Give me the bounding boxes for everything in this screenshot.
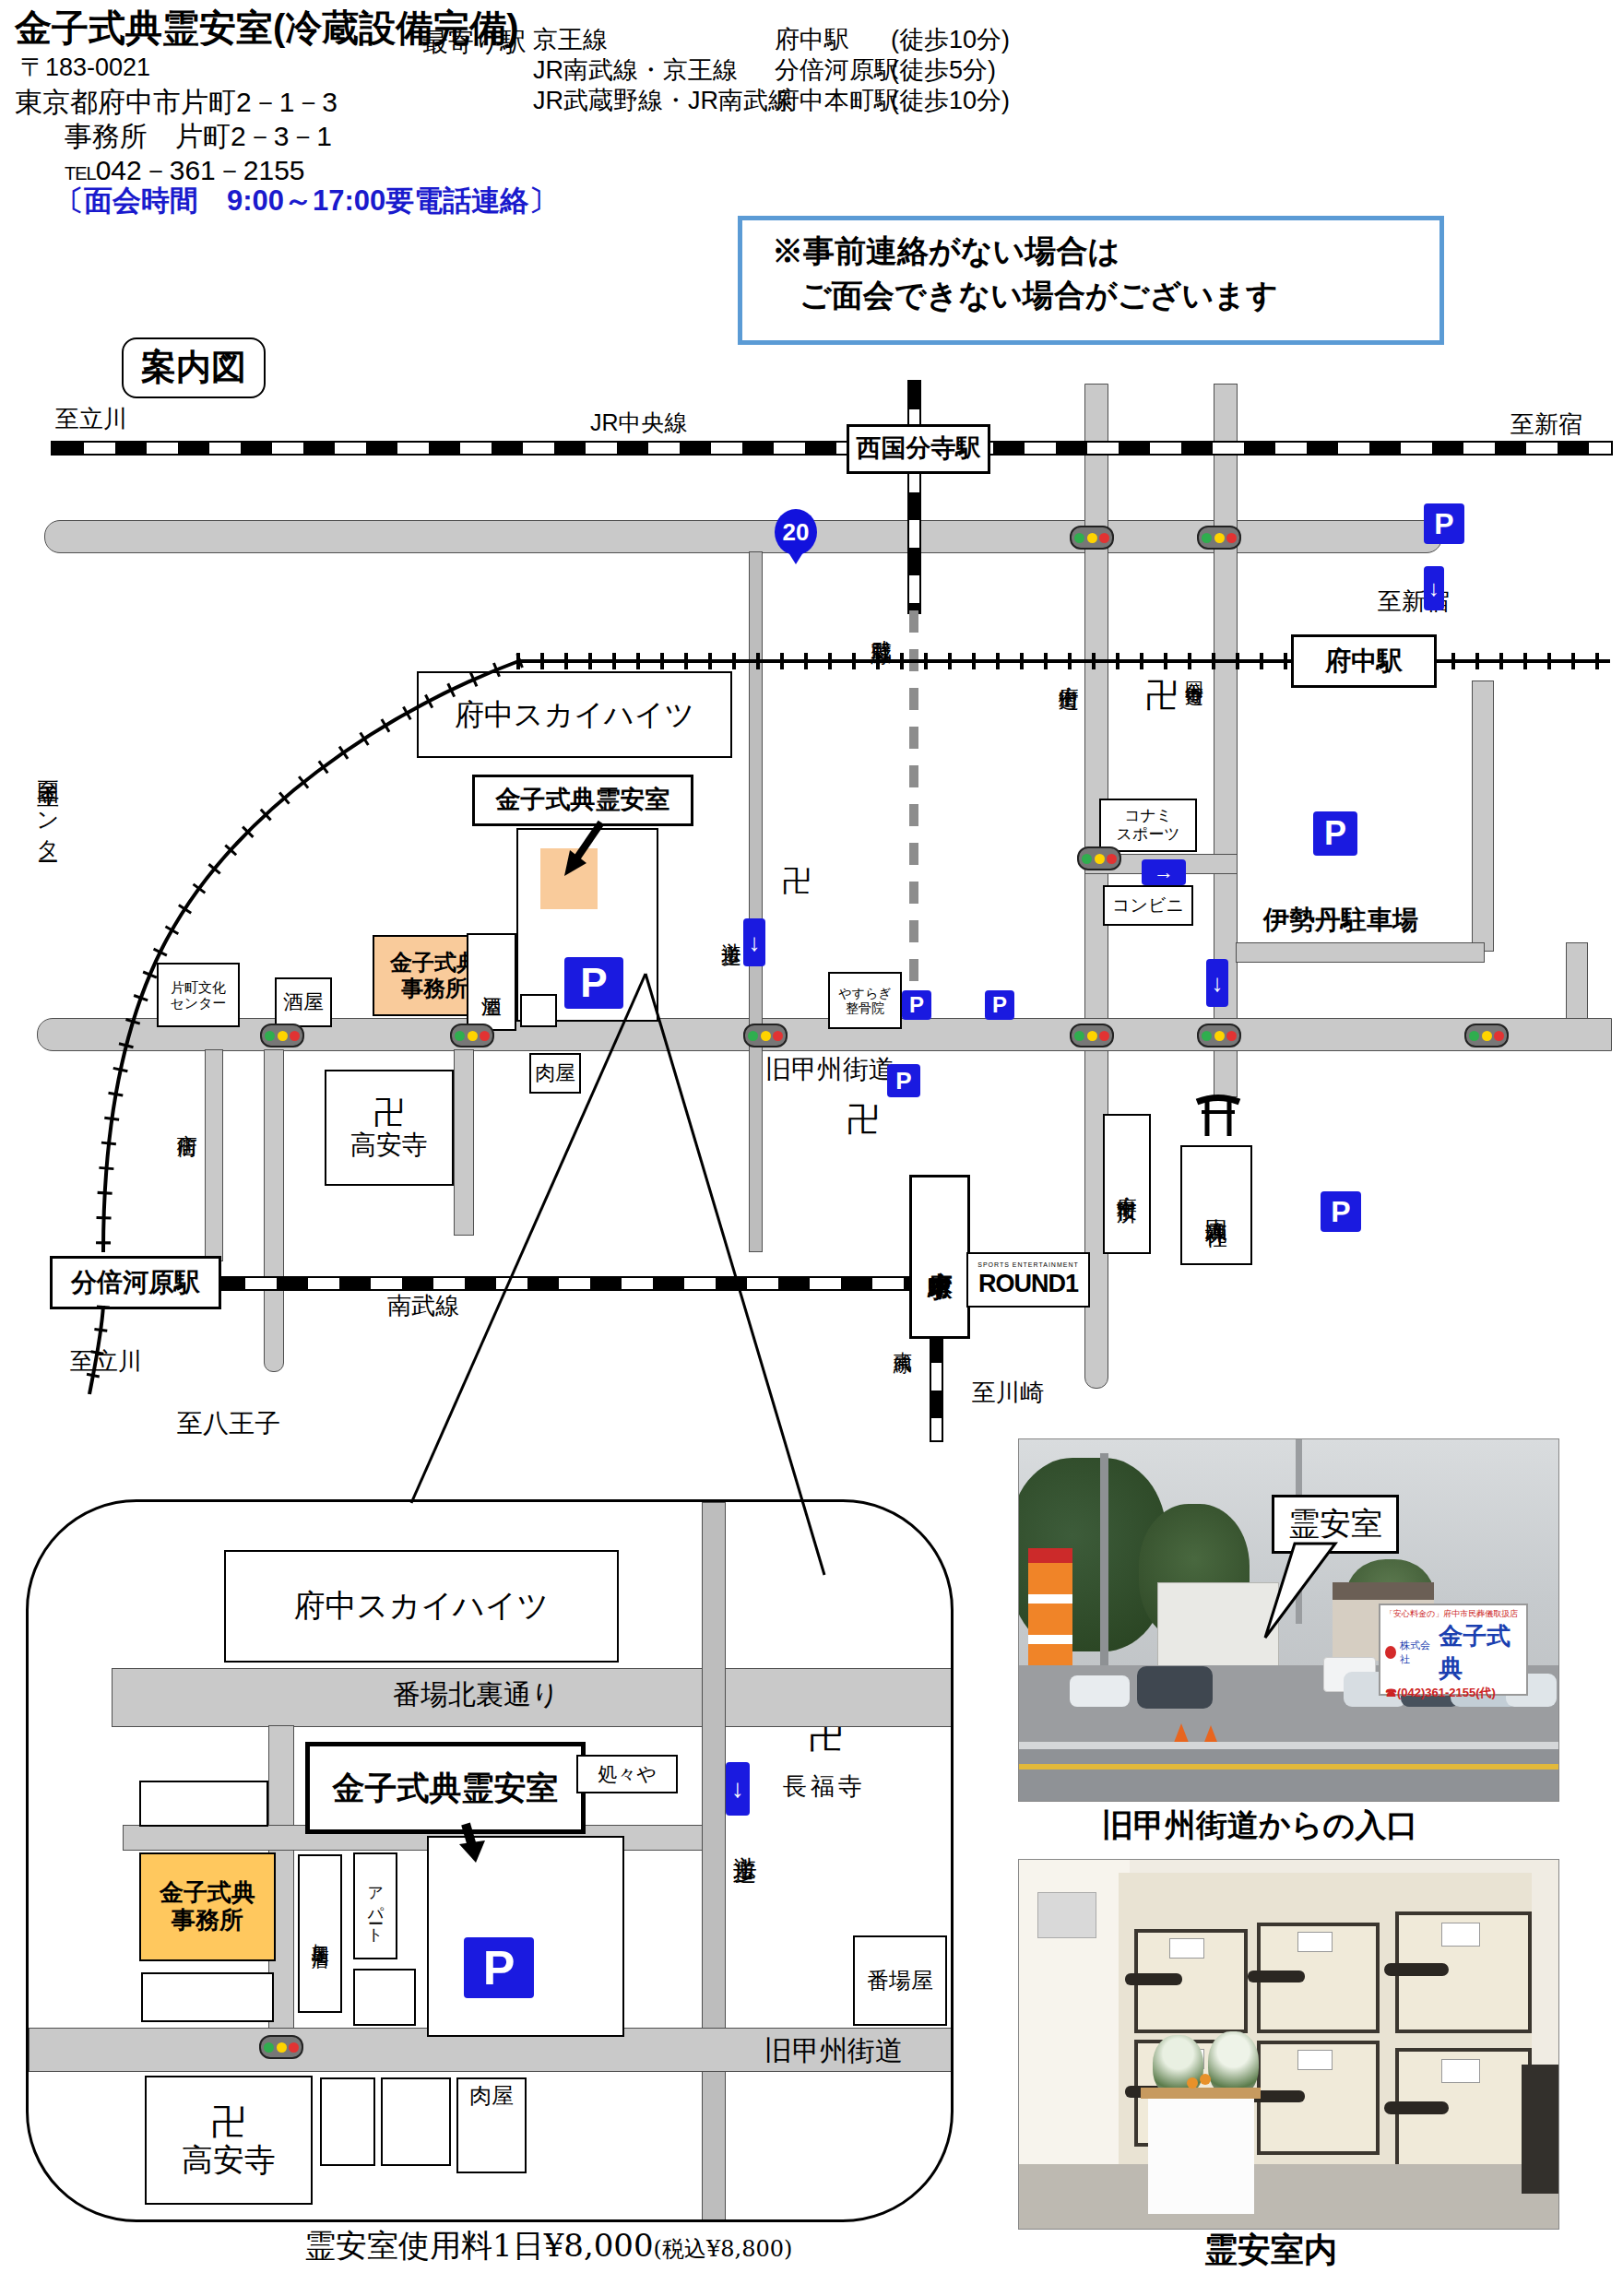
parking-icon: P xyxy=(564,957,623,1009)
shiyakusho-label: 府中市役所 xyxy=(1115,1179,1138,1189)
manji-icon: 卍 xyxy=(782,865,811,898)
jr-chuo-label: JR中央線 xyxy=(590,409,688,435)
traffic-signal-icon xyxy=(743,1024,788,1047)
konami-line1: コナミ xyxy=(1124,807,1172,825)
yasuragi-line1: やすらぎ xyxy=(838,986,891,1000)
apartment-box: アパート xyxy=(353,1852,397,1959)
shotengai-label: 商店街 xyxy=(175,1118,198,1123)
inset-yuhodo-road xyxy=(702,1502,726,2221)
kaneko-office-line1: 金子式典 xyxy=(390,950,479,976)
fuchu-sky-heights-label: 府中スカイハイツ xyxy=(455,698,695,732)
kokubunji-kaido-road xyxy=(1214,384,1238,1042)
door-label-card xyxy=(1441,1923,1480,1947)
traffic-signal-icon xyxy=(1077,846,1121,870)
cooling-unit xyxy=(1037,1892,1096,1938)
isetan-parking-label: 伊勢丹駐車場 xyxy=(1263,905,1418,934)
manji-icon: 卍 xyxy=(373,1095,405,1130)
parking-glyph: P xyxy=(1331,1195,1350,1229)
inset-mortuary-plot xyxy=(427,1836,624,2037)
offering-fruit xyxy=(1200,2074,1211,2085)
nikuya-box: 肉屋 xyxy=(529,1053,581,1094)
inset-takaanji-label: 高安寺 xyxy=(182,2142,276,2178)
inset-takaanji-box: 卍 高安寺 xyxy=(145,2076,313,2205)
table-top xyxy=(1141,2088,1261,2099)
fuchu-honmachi-label: 府中本町駅 xyxy=(926,1252,954,1261)
notice-line1: ※事前連絡がない場合は xyxy=(772,233,1120,268)
sakaya-vertical-box: 酒屋 xyxy=(467,933,516,1031)
down-arrow-glyph: ↓ xyxy=(731,1774,744,1804)
parking-icon: P xyxy=(902,990,931,1020)
table-cloth xyxy=(1148,2099,1254,2214)
photo-callout-text: 霊安室 xyxy=(1288,1506,1382,1542)
parking-sign-board xyxy=(1028,1548,1072,1563)
traffic-signal-icon xyxy=(259,2035,303,2059)
visiting-hours: 〔面会時間 9:00～17:00要電話連絡〕 xyxy=(55,185,557,218)
inset-white-box xyxy=(320,2077,375,2166)
manji-icon: 卍 xyxy=(1145,677,1179,714)
fridge-door xyxy=(1257,2041,1380,2155)
fuchu-station: 府中駅 xyxy=(1291,634,1437,688)
katamachi-line2: センター xyxy=(170,995,226,1011)
interior-caption: 霊安室内 xyxy=(1204,2231,1337,2268)
office-address: 事務所 片町2－3－1 xyxy=(65,121,332,152)
station-1: 府中駅 xyxy=(775,26,849,53)
map-title-text: 案内図 xyxy=(141,348,246,388)
sign-name: 金子式典 xyxy=(1439,1620,1522,1685)
parking-glyph: P xyxy=(1324,814,1346,853)
sign-company: 株式会社 xyxy=(1400,1639,1435,1666)
okunitama-label: 大国魂神社 xyxy=(1203,1201,1229,1210)
fridge-door xyxy=(1395,1911,1532,2033)
round1-box: SPORTS ENTERTAINMENT ROUND1 xyxy=(966,1252,1090,1308)
bubaigawara-station: 分倍河原駅 xyxy=(50,1256,221,1309)
inset-yuhodo-label: 遊歩道 xyxy=(731,1838,758,1843)
road-line xyxy=(1019,1764,1558,1769)
right-arrow-glyph: → xyxy=(1154,860,1174,884)
entrance-photo: 「安心料金の」府中市民葬儀取扱店 株式会社 金子式典 ☎(042)361-215… xyxy=(1018,1438,1559,1802)
interior-photo xyxy=(1018,1859,1559,2230)
katamachi-line1: 片町文化 xyxy=(171,979,226,995)
door-label-card xyxy=(1297,2050,1333,2070)
kaneko-office-line2: 事務所 xyxy=(401,976,468,1001)
down-arrow-sign-icon: ↓ xyxy=(1206,959,1228,1007)
isetan-north-road xyxy=(1236,942,1485,963)
photo-callout-box: 霊安室 xyxy=(1272,1495,1399,1554)
notice-box: ※事前連絡がない場合は ご面会できない場合がございます xyxy=(738,216,1444,345)
price-main: 霊安室使用料1日¥8,000 xyxy=(304,2227,654,2264)
manji-icon: 卍 xyxy=(847,1101,880,1138)
isetan-east-road xyxy=(1566,942,1588,1027)
down-arrow-glyph: ↓ xyxy=(1428,575,1439,601)
to-kunitachi-inter: 至国立インター xyxy=(35,763,60,852)
parking-icon: P xyxy=(464,1937,534,1998)
floor xyxy=(1019,2164,1558,2229)
inset-sky-heights-label: 府中スカイハイツ xyxy=(294,1588,550,1624)
fuchu-kaido-label: 府中街道 xyxy=(1057,669,1080,677)
nishikokubunji-label: 西国分寺駅 xyxy=(857,434,981,463)
line-3: JR武蔵野線・JR南武線 xyxy=(533,87,793,114)
fuchu-south-road xyxy=(1472,681,1494,952)
fuchu-shiyakusho-box: 府中市役所 xyxy=(1103,1114,1151,1254)
route20-badge: 20 xyxy=(775,509,817,555)
sign-tel: ☎(042)361-2155(代) xyxy=(1385,1685,1522,1701)
inset-reianshitsu-label: 金子式典霊安室 xyxy=(305,1742,586,1834)
nearest-station-label: 最寄り駅 xyxy=(422,28,527,56)
traffic-signal-icon xyxy=(1070,526,1114,550)
traffic-signal-icon xyxy=(260,1024,304,1047)
traffic-signal-icon xyxy=(1197,1024,1241,1047)
bambaya-label: 番場屋 xyxy=(867,1968,933,1994)
round1-logo: ROUND1 xyxy=(978,1270,1078,1298)
guide-map-page: 金子式典霊安室(冷蔵設備完備) 〒183-0021 東京都府中市片町2－1－3 … xyxy=(0,0,1623,2296)
fuchu-sky-heights-box: 府中スカイハイツ xyxy=(417,671,732,758)
to-tachikawa-bottom: 至立川 xyxy=(70,1348,142,1375)
konami-line2: スポーツ xyxy=(1116,825,1179,844)
parking-glyph: P xyxy=(483,1940,515,1995)
k-logo-icon xyxy=(1385,1646,1396,1659)
to-tachikawa-top: 至立川 xyxy=(55,406,127,432)
shotengai-road xyxy=(205,1049,223,1261)
okunitama-jinja-box: 大国魂神社 xyxy=(1180,1145,1252,1265)
traffic-signal-icon xyxy=(1197,526,1241,550)
yuhodo-label: 遊歩道 xyxy=(719,927,742,932)
road-surface xyxy=(1019,1749,1558,1801)
inset-detail-map: 番場北裏通り 旧甲州街道 府中スカイハイツ 金子式典霊安室 処々や 金子式典 事… xyxy=(26,1499,954,2222)
inset-office-line2: 事務所 xyxy=(172,1907,243,1935)
parking-icon: P xyxy=(887,1064,920,1097)
door-label-card xyxy=(1297,1932,1333,1952)
inset-nikuya-label: 肉屋 xyxy=(469,2083,514,2109)
apartment-label: アパート xyxy=(366,1876,385,1936)
fuchu-station-label: 府中駅 xyxy=(1325,646,1403,676)
inset-kyu-koshu-label: 旧甲州街道 xyxy=(764,2035,903,2066)
to-kawasaki: 至川崎 xyxy=(972,1379,1044,1406)
fridge-door xyxy=(1257,1923,1380,2033)
curb xyxy=(1019,1742,1558,1749)
nishikokubunji-station: 西国分寺駅 xyxy=(847,424,990,474)
price-caption: 霊安室使用料1日¥8,000(税込¥8,800) xyxy=(304,2228,792,2263)
parking-glyph: P xyxy=(895,1067,911,1095)
musashino-railway xyxy=(907,380,921,614)
kashimaya-box: 加島屋酒店 xyxy=(298,1854,342,2013)
building xyxy=(1157,1582,1279,1667)
inset-nikuya-box: 肉屋 xyxy=(456,2077,527,2173)
fuchu-honmachi-station: 府中本町駅 xyxy=(909,1175,970,1339)
mortuary-building xyxy=(540,848,598,909)
parking-glyph: P xyxy=(580,960,607,1006)
route20-number: 20 xyxy=(783,518,810,547)
parking-glyph: P xyxy=(992,992,1007,1018)
postal-code: 〒183-0021 xyxy=(20,53,150,81)
traffic-signal-icon xyxy=(1464,1024,1509,1047)
line-2: JR南武線・京王線 xyxy=(533,56,738,84)
inset-sky-heights-box: 府中スカイハイツ xyxy=(224,1550,619,1663)
bubaigawara-label: 分倍河原駅 xyxy=(71,1268,200,1297)
price-tax: (税込¥8,800) xyxy=(654,2236,793,2262)
kashimaya-label: 加島屋酒店 xyxy=(310,1929,330,1938)
reianshitsu-map-label: 金子式典霊安室 xyxy=(472,775,693,826)
telephone: TEL042－361－2155 xyxy=(65,155,305,186)
small-building-box xyxy=(520,994,557,1027)
musashino-label: 武蔵野線 xyxy=(870,623,893,631)
kyu-koshu-kaido-label: 旧甲州街道 xyxy=(765,1055,894,1083)
reianshitsu-text: 金子式典霊安室 xyxy=(496,786,670,814)
door-handle xyxy=(1125,1973,1182,1985)
nambu-railway xyxy=(212,1276,974,1291)
parking-glyph: P xyxy=(909,992,924,1018)
down-arrow-glyph: ↓ xyxy=(1212,969,1224,998)
bamba-road-label: 番場北裏通り xyxy=(393,1679,560,1710)
parking-icon: P xyxy=(985,990,1014,1020)
tel-number: 042－361－2155 xyxy=(96,155,305,185)
offering-fruit xyxy=(1187,2077,1198,2089)
inset-kaneko-office-box: 金子式典 事務所 xyxy=(139,1852,276,1961)
down-arrow-glyph: ↓ xyxy=(749,929,761,957)
inset-white-box xyxy=(141,1972,274,2022)
station-3: 府中本町駅 xyxy=(775,87,899,114)
tel-label: TEL xyxy=(65,163,96,183)
takaanji-label: 高安寺 xyxy=(350,1130,428,1160)
south-road-b xyxy=(454,1049,474,1236)
chofukuji-label: 長福寺 xyxy=(783,1773,866,1800)
nambu-label: 南武線 xyxy=(387,1293,459,1320)
nambu-railway-south xyxy=(930,1333,943,1442)
down-arrow-sign-icon: ↓ xyxy=(743,918,765,966)
parking-glyph: P xyxy=(1434,507,1453,541)
walk-3: (徒歩10分) xyxy=(891,87,1010,114)
door-handle xyxy=(1384,2101,1449,2114)
parking-icon: P xyxy=(1321,1191,1361,1232)
address: 東京都府中市片町2－1－3 xyxy=(15,87,338,118)
inset-reianshitsu-text: 金子式典霊安室 xyxy=(333,1769,559,1806)
to-shinjuku-top: 至新宿 xyxy=(1510,411,1582,438)
walk-1: (徒歩10分) xyxy=(891,26,1010,53)
musashino-railway-south xyxy=(909,610,918,1036)
entrance-caption: 旧甲州街道からの入口 xyxy=(1102,1807,1417,1842)
to-hachioji: 至八王子 xyxy=(177,1409,280,1438)
door-handle xyxy=(1384,1963,1449,1976)
map-title: 案内図 xyxy=(122,337,266,398)
inset-white-box xyxy=(353,1969,416,2026)
parking-icon: P xyxy=(1313,811,1357,856)
cabinet xyxy=(1522,2065,1558,2194)
door-handle xyxy=(1248,1971,1305,1982)
sakaya-box: 酒屋 xyxy=(275,977,332,1027)
conbini-label: コンビニ xyxy=(1112,895,1184,916)
manji-icon: 卍 xyxy=(211,2102,246,2143)
shoshoya-box: 処々や xyxy=(576,1755,678,1793)
inset-white-box xyxy=(381,2077,451,2166)
inset-office-line1: 金子式典 xyxy=(160,1879,255,1907)
traffic-signal-icon xyxy=(1070,1024,1114,1047)
takaanji-box: 卍 高安寺 xyxy=(325,1070,454,1186)
door-label-card xyxy=(1441,2059,1480,2083)
inset-white-box xyxy=(139,1781,268,1827)
katamachi-bunka-center-box: 片町文化 センター xyxy=(157,963,240,1027)
line-1: 京王線 xyxy=(533,26,608,53)
right-arrow-sign-icon: → xyxy=(1142,859,1186,885)
sakaya-label: 酒屋 xyxy=(283,990,324,1013)
sakaya-label: 酒屋 xyxy=(480,980,503,984)
car xyxy=(1137,1666,1213,1709)
south-road-a xyxy=(264,1049,284,1372)
nikuya-label: 肉屋 xyxy=(535,1061,575,1084)
traffic-signal-icon xyxy=(450,1024,494,1047)
door-label-card xyxy=(1169,1938,1204,1959)
shoshoya-label: 処々や xyxy=(598,1763,657,1785)
yasuragi-line2: 整骨院 xyxy=(846,1000,884,1015)
torii-icon xyxy=(1193,1090,1243,1138)
down-arrow-sign-icon: ↓ xyxy=(1424,566,1444,610)
bambaya-box: 番場屋 xyxy=(853,1935,947,2026)
notice-line2: ご面会できない場合がございます xyxy=(800,278,1278,313)
parking-icon: P xyxy=(1424,503,1464,544)
yasuragi-seikotsuin-box: やすらぎ 整骨院 xyxy=(828,972,902,1029)
konami-sports-box: コナミ スポーツ xyxy=(1099,799,1197,852)
conbini-box: コンビニ xyxy=(1103,885,1193,926)
sign-top-line: 「安心料金の」府中市民葬儀取扱店 xyxy=(1385,1608,1522,1620)
walk-2: (徒歩5分) xyxy=(891,56,996,84)
fridge-door xyxy=(1134,1929,1248,2033)
down-arrow-sign-icon: ↓ xyxy=(726,1762,750,1816)
keio-railway xyxy=(516,653,1610,669)
car xyxy=(1070,1675,1130,1707)
round1-subtitle: SPORTS ENTERTAINMENT xyxy=(977,1261,1078,1269)
kaneko-signboard: 「安心料金の」府中市民葬儀取扱店 株式会社 金子式典 ☎(042)361-215… xyxy=(1379,1604,1528,1696)
fridge-door xyxy=(1395,2048,1532,2173)
station-2: 分倍河原駅 xyxy=(775,56,899,84)
jr-chuo-railway xyxy=(51,441,1613,456)
